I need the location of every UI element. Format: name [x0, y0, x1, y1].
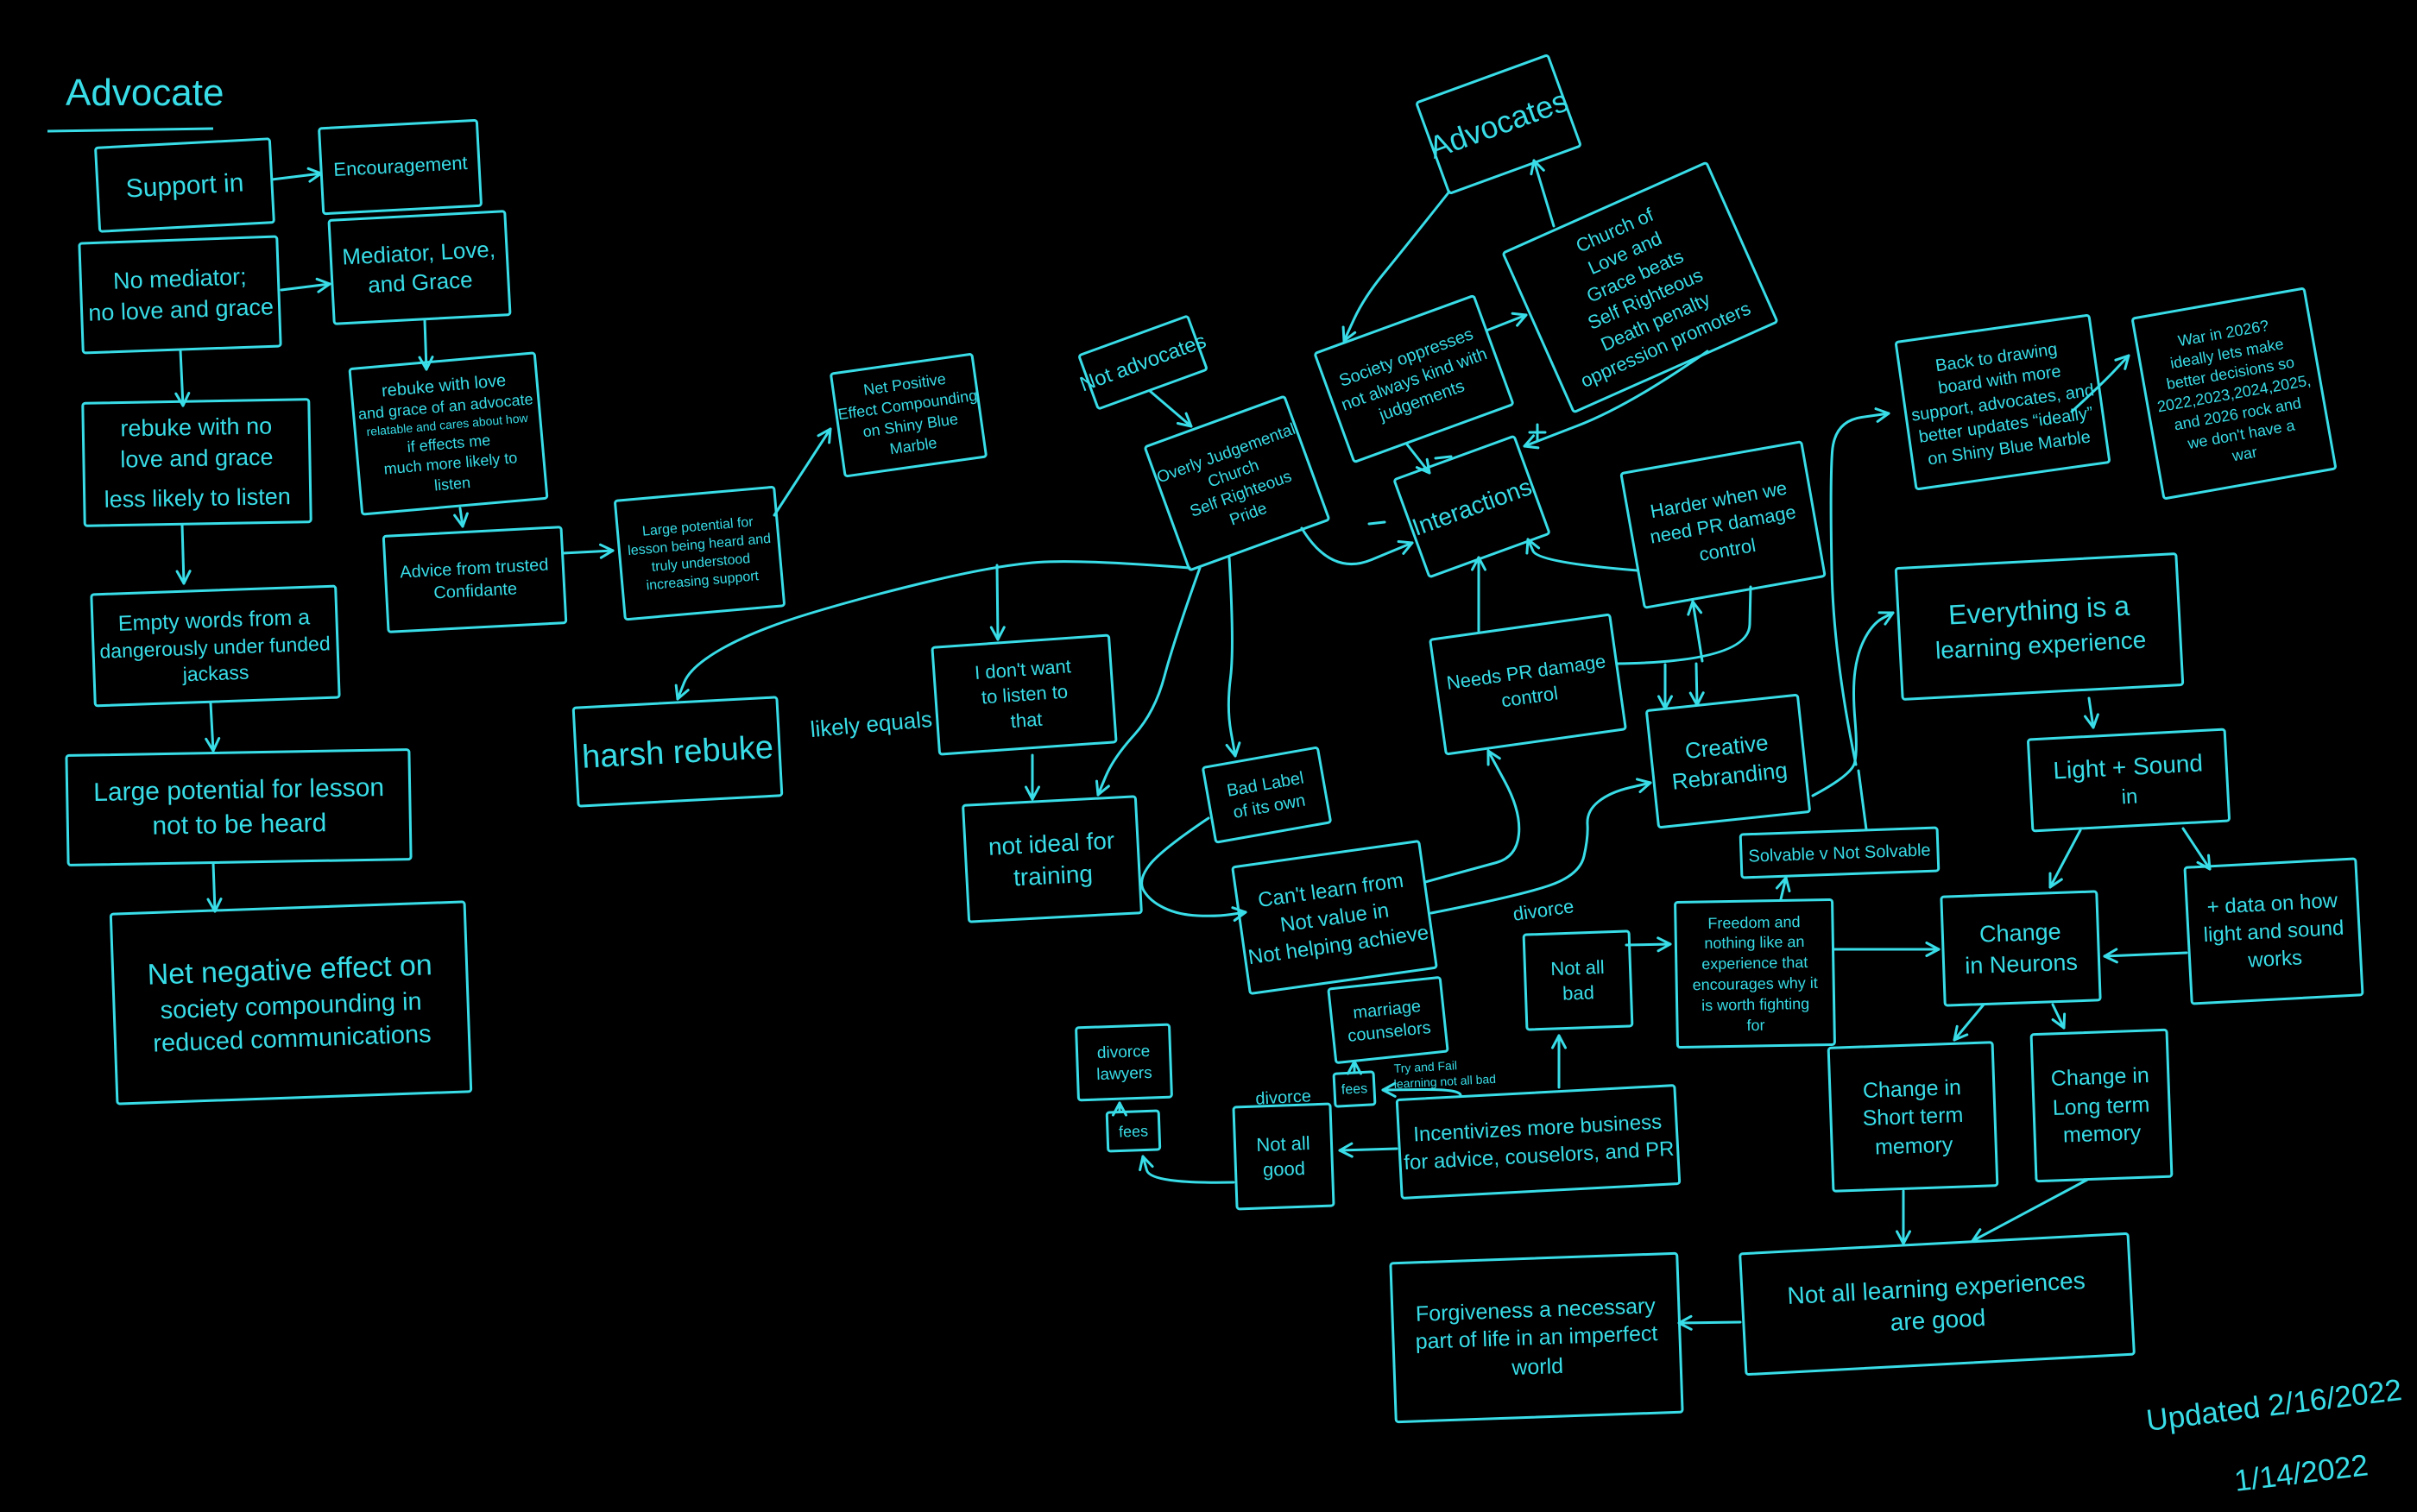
svg-text:Long term: Long term — [2052, 1093, 2149, 1120]
svg-text:Freedom and: Freedom and — [1707, 913, 1800, 932]
svg-text:listen: listen — [433, 474, 471, 495]
svg-text:jackass: jackass — [181, 661, 249, 686]
svg-text:Short term: Short term — [1862, 1103, 1964, 1131]
svg-text:encourages why it: encourages why it — [1692, 974, 1817, 994]
svg-text:divorce: divorce — [1255, 1087, 1312, 1108]
svg-text:less likely to listen: less likely to listen — [104, 483, 291, 513]
svg-text:works: works — [2247, 946, 2303, 972]
svg-text:No mediator;: No mediator; — [113, 263, 248, 293]
svg-text:Not all: Not all — [1256, 1132, 1310, 1156]
svg-text:good: good — [1263, 1157, 1306, 1181]
svg-text:Large potential for lesson: Large potential for lesson — [93, 773, 384, 807]
svg-text:experience that: experience that — [1701, 954, 1808, 973]
svg-text:training: training — [1013, 860, 1093, 891]
svg-text:world: world — [1511, 1354, 1564, 1380]
svg-text:in: in — [2121, 785, 2138, 810]
svg-text:Change in: Change in — [1862, 1075, 1961, 1103]
svg-text:Advocate: Advocate — [66, 72, 224, 114]
svg-text:divorce: divorce — [1097, 1043, 1151, 1062]
svg-text:lawyers: lawyers — [1096, 1064, 1152, 1084]
svg-text:nothing like an: nothing like an — [1704, 933, 1804, 952]
svg-text:and Grace: and Grace — [367, 267, 473, 298]
svg-text:Not all: Not all — [1550, 956, 1605, 980]
svg-text:is worth fighting: is worth fighting — [1701, 995, 1809, 1014]
svg-text:rebuke with no: rebuke with no — [120, 413, 272, 441]
svg-text:bad: bad — [1562, 981, 1595, 1004]
svg-text:memory: memory — [1875, 1132, 1954, 1159]
svg-text:fees: fees — [1119, 1122, 1149, 1140]
svg-text:are good: are good — [1890, 1304, 1986, 1336]
svg-text:in Neurons: in Neurons — [1965, 949, 2079, 980]
svg-text:Change in: Change in — [2050, 1063, 2149, 1091]
svg-text:memory: memory — [2063, 1120, 2142, 1147]
svg-text:Change: Change — [1979, 918, 2062, 947]
svg-text:not to be heard: not to be heard — [152, 809, 326, 841]
svg-text:love and grace: love and grace — [120, 444, 274, 472]
svg-text:fees: fees — [1341, 1081, 1367, 1098]
svg-text:that: that — [1010, 709, 1043, 732]
svg-text:for: for — [1746, 1017, 1764, 1034]
